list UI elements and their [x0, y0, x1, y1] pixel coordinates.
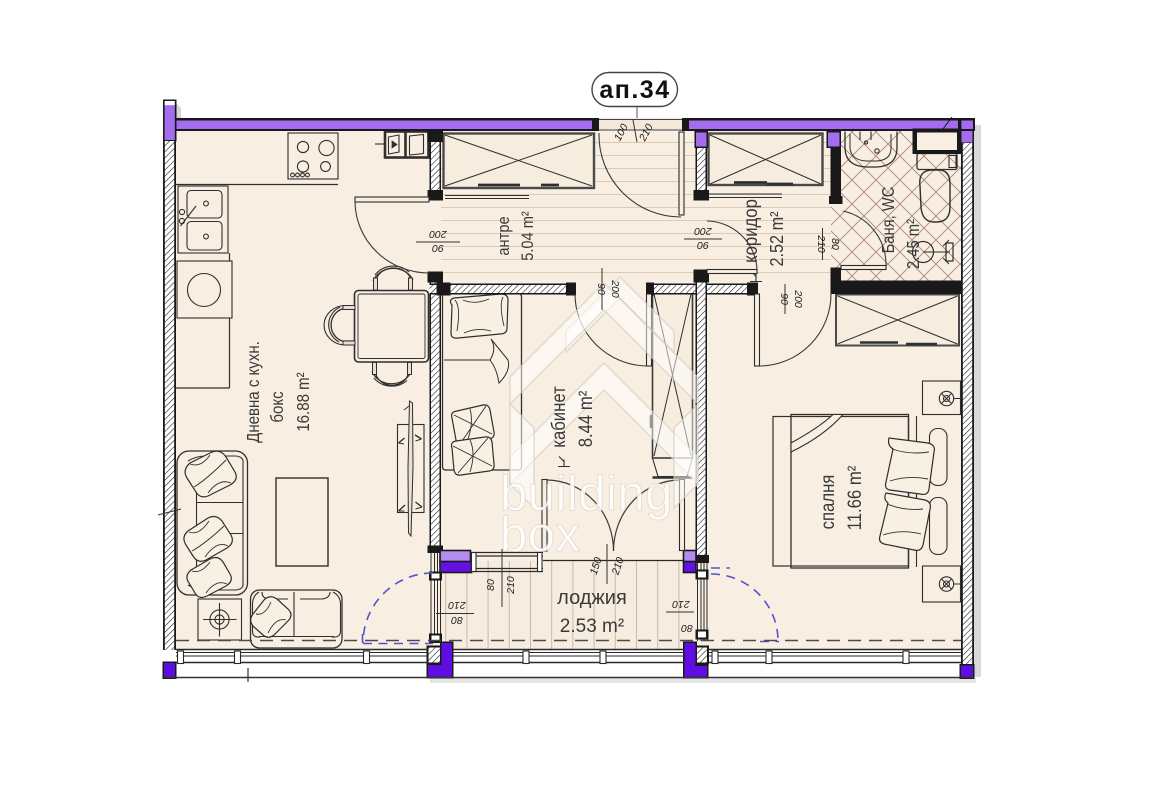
svg-text:box: box — [500, 508, 581, 562]
svg-text:200: 200 — [694, 225, 713, 237]
svg-text:бокс: бокс — [268, 391, 287, 422]
svg-text:спалня: спалня — [817, 475, 838, 530]
svg-text:Дневна с кухн.: Дневна с кухн. — [244, 341, 263, 443]
svg-text:11.66 m²: 11.66 m² — [844, 466, 865, 531]
svg-text:210: 210 — [672, 598, 691, 610]
svg-text:90: 90 — [595, 283, 607, 295]
svg-text:200: 200 — [792, 289, 804, 308]
svg-text:16.88 m²: 16.88 m² — [294, 372, 313, 432]
svg-text:200: 200 — [429, 228, 448, 240]
svg-text:90: 90 — [432, 242, 444, 254]
svg-text:90: 90 — [697, 239, 709, 251]
svg-text:90: 90 — [778, 293, 790, 305]
svg-text:коридор: коридор — [740, 199, 761, 263]
svg-text:кабинет: кабинет — [548, 386, 569, 447]
svg-text:210: 210 — [505, 576, 517, 595]
svg-text:антре: антре — [495, 216, 513, 255]
svg-text:5.04 m²: 5.04 m² — [519, 211, 537, 261]
svg-text:80: 80 — [485, 579, 497, 591]
svg-text:210: 210 — [815, 234, 827, 253]
svg-text:2.45 m²: 2.45 m² — [904, 219, 924, 269]
svg-text:80: 80 — [681, 622, 693, 634]
svg-text:80: 80 — [451, 614, 463, 626]
svg-text:ап.34: ап.34 — [599, 76, 670, 104]
svg-text:8.44 m²: 8.44 m² — [575, 391, 596, 448]
svg-text:2.52 m²: 2.52 m² — [766, 211, 787, 266]
svg-text:Баня, WC: Баня, WC — [879, 187, 899, 254]
svg-text:80: 80 — [829, 238, 841, 250]
svg-text:200: 200 — [609, 279, 621, 298]
svg-text:2.53 m²: 2.53 m² — [560, 616, 624, 637]
svg-text:210: 210 — [448, 599, 467, 611]
svg-text:лоджия: лоджия — [557, 587, 627, 609]
